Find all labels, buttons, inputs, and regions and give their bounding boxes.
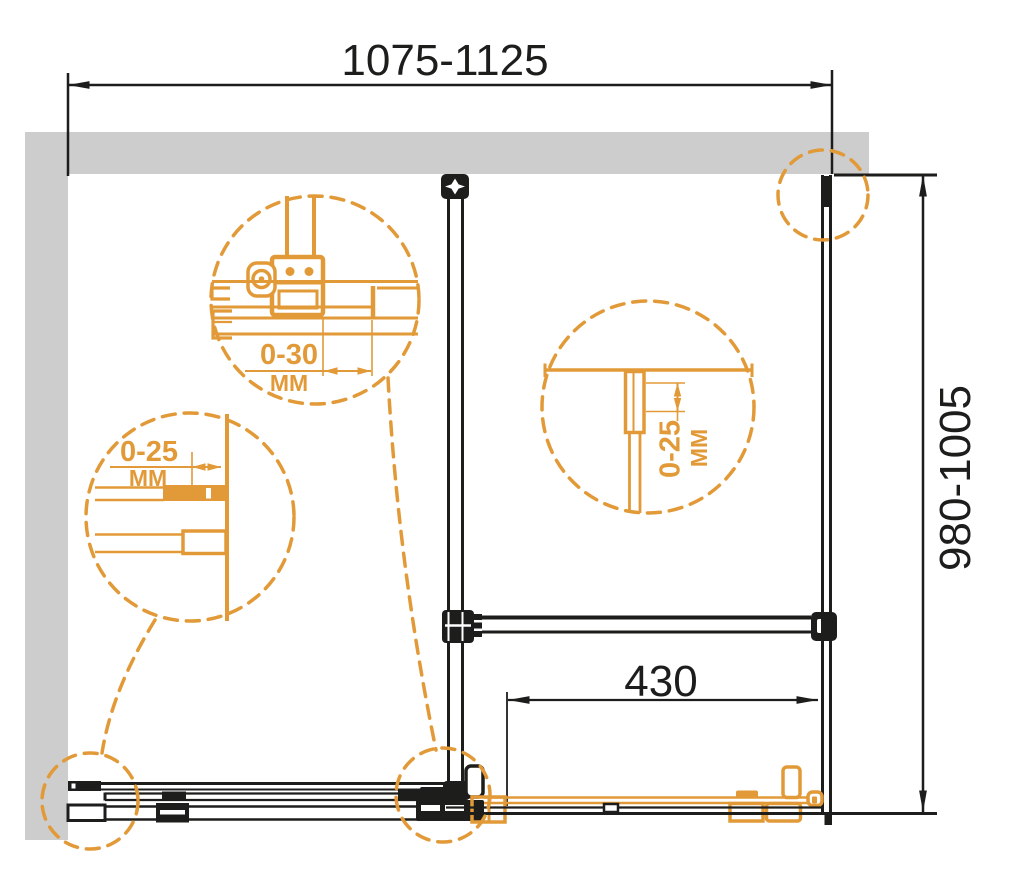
drawing-canvas: 1075-1125 980-1005 430 [0, 0, 1017, 889]
leader-center [388, 378, 436, 750]
bottom-guide-lines [446, 804, 937, 814]
glass-insert-lower [183, 531, 226, 554]
leader-left [102, 620, 155, 753]
roller-screw [305, 267, 314, 276]
width-dimension-label: 1075-1125 [341, 36, 548, 85]
door-dimension-label: 430 [624, 657, 697, 706]
wall-profile-unit-label: MM [129, 465, 167, 491]
track-a-end-slot [72, 784, 76, 789]
wall-profile-range-label: 0-25 [120, 436, 178, 468]
track-c-end-box [68, 805, 105, 821]
shower-enclosure-technical-drawing: 1075-1125 980-1005 430 [0, 0, 1017, 889]
assembly-vertical-guide [466, 766, 483, 797]
right-wall-profile-top-bar [822, 176, 831, 207]
roller-range-label: 0-30 [260, 339, 318, 371]
detail-wall-profile: 0-25 MM [86, 413, 294, 621]
door-handle-knob [783, 767, 800, 798]
bottom-tracks [68, 781, 460, 823]
assembly-base-slot [421, 805, 440, 811]
detail-top-profile-circle [542, 301, 754, 513]
dimension-depth: 980-1005 [834, 175, 980, 812]
wall-left [25, 132, 68, 840]
roller-unit-label: MM [270, 370, 308, 396]
glass-insert-slot [206, 488, 211, 499]
roller-left-profile-a [212, 288, 230, 299]
bracket-tooth [474, 631, 482, 637]
depth-dimension-label: 980-1005 [931, 385, 980, 571]
dimension-door-width: 430 [507, 657, 818, 806]
detail-roller: 0-30 MM [211, 196, 419, 404]
top-profile-body [626, 372, 645, 433]
glass-insert-upper [163, 485, 225, 501]
bottom-guide-clip [604, 804, 618, 812]
track-b-glass-block [162, 792, 186, 801]
bracket-tooth [474, 614, 482, 620]
detail-top-profile: 0-25 MM [542, 301, 754, 513]
top-profile-unit-label: MM [686, 429, 712, 467]
wall-top [25, 132, 869, 174]
top-profile-range-label: 0-25 [655, 420, 687, 478]
callout-leaders [102, 378, 436, 753]
bracket-tooth [474, 623, 482, 629]
door-stopper-tab [736, 791, 758, 798]
assembly-block-b [420, 787, 445, 800]
door-rail-end-dot [812, 797, 817, 804]
roller-screw [286, 267, 295, 276]
detail-wall-profile-circle [86, 413, 294, 621]
track-c-glass-block-slot [160, 810, 185, 815]
assembly-block-a [398, 790, 422, 800]
